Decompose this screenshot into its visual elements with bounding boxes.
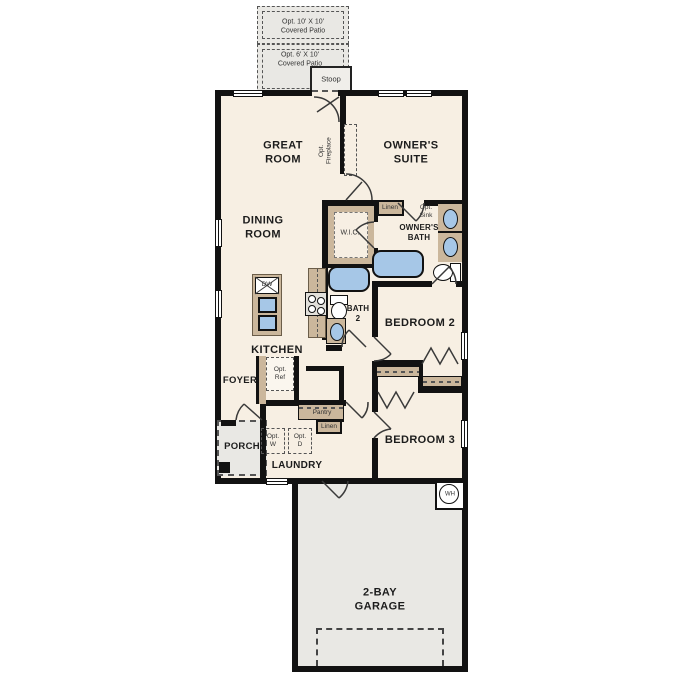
wall [420,387,462,393]
laundry-label: LAUNDRY [272,460,323,473]
bath2-sink [330,323,344,341]
pantry-label: Pantry [313,409,332,417]
burner [317,307,325,315]
bedroom3-label: BEDROOM 3 [385,434,455,448]
closet-shelf [422,376,462,387]
linen-upper-label: Linen [382,204,398,212]
window [461,332,468,360]
owners-bath-label: OWNER'S BATH [399,223,438,243]
opt-ref-label: Opt. Ref [274,366,286,382]
window [215,290,222,318]
porch-label: PORCH [224,441,260,453]
stoop-label: Stoop [321,74,341,83]
great-room-label: GREAT ROOM [263,139,303,167]
wall [326,345,342,351]
burner [308,305,316,313]
burner [308,295,316,303]
foyer-label: FOYER [223,375,257,387]
wall [372,281,432,287]
window [461,420,468,448]
opt-sink-fixture [443,237,458,257]
window [378,90,404,97]
owners-suite-label: OWNER'S SUITE [384,139,439,167]
bedroom2-label: BEDROOM 2 [385,317,455,331]
floor-plan: Opt. 10' X 10' Covered Patio Opt. 6' X 1… [0,0,687,687]
closet-shelf [376,366,420,377]
foyer-cabinet [259,356,266,404]
dining-room-label: DINING ROOM [243,214,284,242]
opt-fireplace-label: Opt. Fireplace [318,122,334,180]
kitchen-sink [258,315,277,331]
kitchen-sink [258,297,277,313]
window [233,90,263,97]
wall [372,438,378,478]
vanity-sink [443,209,458,229]
window [266,478,288,485]
wall [221,420,236,426]
linen-lower-label: Linen [321,423,337,431]
opt-fireplace-box [344,124,357,176]
entry-threshold [312,90,338,97]
window [406,90,432,97]
wall [294,356,299,406]
vanity-divider [438,231,462,233]
kitchen-label: KITCHEN [251,344,303,358]
window [215,219,222,247]
owners-tub [372,250,424,278]
dishwasher-label: DW [261,281,274,289]
garage-door-dashed [316,628,444,666]
garage-label: 2-BAY GARAGE [355,586,406,614]
bath2-tub [328,266,370,292]
toilet-bowl [433,264,453,281]
wall [372,287,378,337]
opt-dryer-label: Opt. D [294,433,306,449]
opt-sink-label: Opt. Sink [420,204,433,220]
water-heater-label: WH [445,491,455,499]
bath2-label: BATH 2 [347,304,369,324]
opt-washer-label: Opt. W [267,433,279,449]
patio-10x10-label: Opt. 10' X 10' Covered Patio [281,18,325,36]
porch-post [219,462,230,473]
range-stove [305,292,327,316]
wic-label: W.I.C. [340,230,359,239]
burner [317,297,325,305]
